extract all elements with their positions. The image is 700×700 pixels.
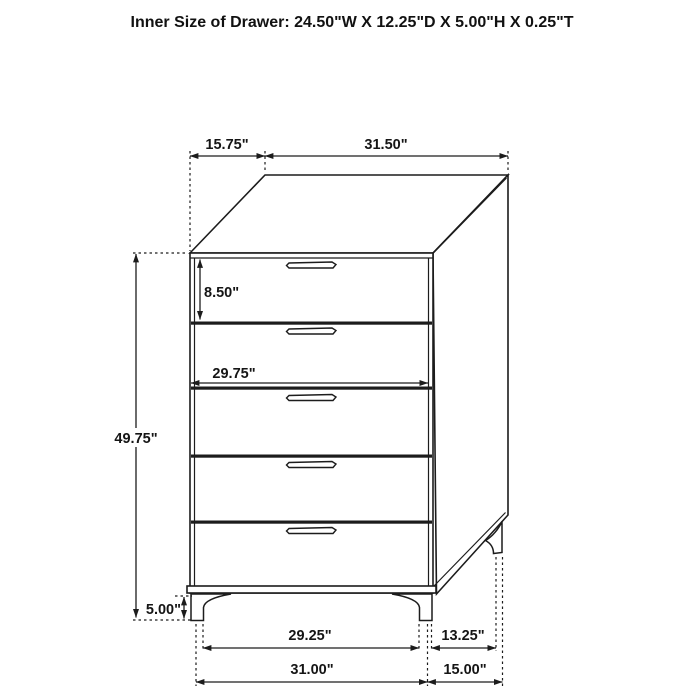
drawer-4-handle <box>287 462 337 468</box>
dim-label-overall-width: 31.00" <box>290 662 333 678</box>
dim-label-base-side-depth: 13.25" <box>441 628 484 644</box>
drawer-1-handle <box>287 262 337 268</box>
drawer-5-handle <box>287 528 337 534</box>
front-face-outline <box>190 253 433 593</box>
dim-label-top-depth: 15.75" <box>205 137 248 153</box>
drawer-2-handle <box>287 328 337 334</box>
base-rail <box>187 586 436 593</box>
dim-label-overall-depth: 15.00" <box>443 662 486 678</box>
diagram-title: Inner Size of Drawer: 24.50"W X 12.25"D … <box>131 14 574 31</box>
dim-label-drawer-inner-width: 29.75" <box>212 366 255 382</box>
chest-front-face <box>190 253 433 593</box>
chest-dimension-diagram: Inner Size of Drawer: 24.50"W X 12.25"D … <box>0 0 700 700</box>
drawer-3-handle <box>287 395 337 401</box>
dim-label-chest-height: 49.75" <box>114 431 157 447</box>
drawer-divider <box>191 387 432 390</box>
dim-label-base-front-width: 29.25" <box>288 628 331 644</box>
dim-label-top-drawer-height: 8.50" <box>204 285 239 301</box>
chest <box>187 175 508 621</box>
drawer-divider <box>191 521 432 524</box>
drawer-divider <box>191 455 432 458</box>
dim-label-leg-height: 5.00" <box>146 602 181 618</box>
drawer-divider <box>191 322 432 325</box>
dim-label-top-width: 31.50" <box>364 137 407 153</box>
